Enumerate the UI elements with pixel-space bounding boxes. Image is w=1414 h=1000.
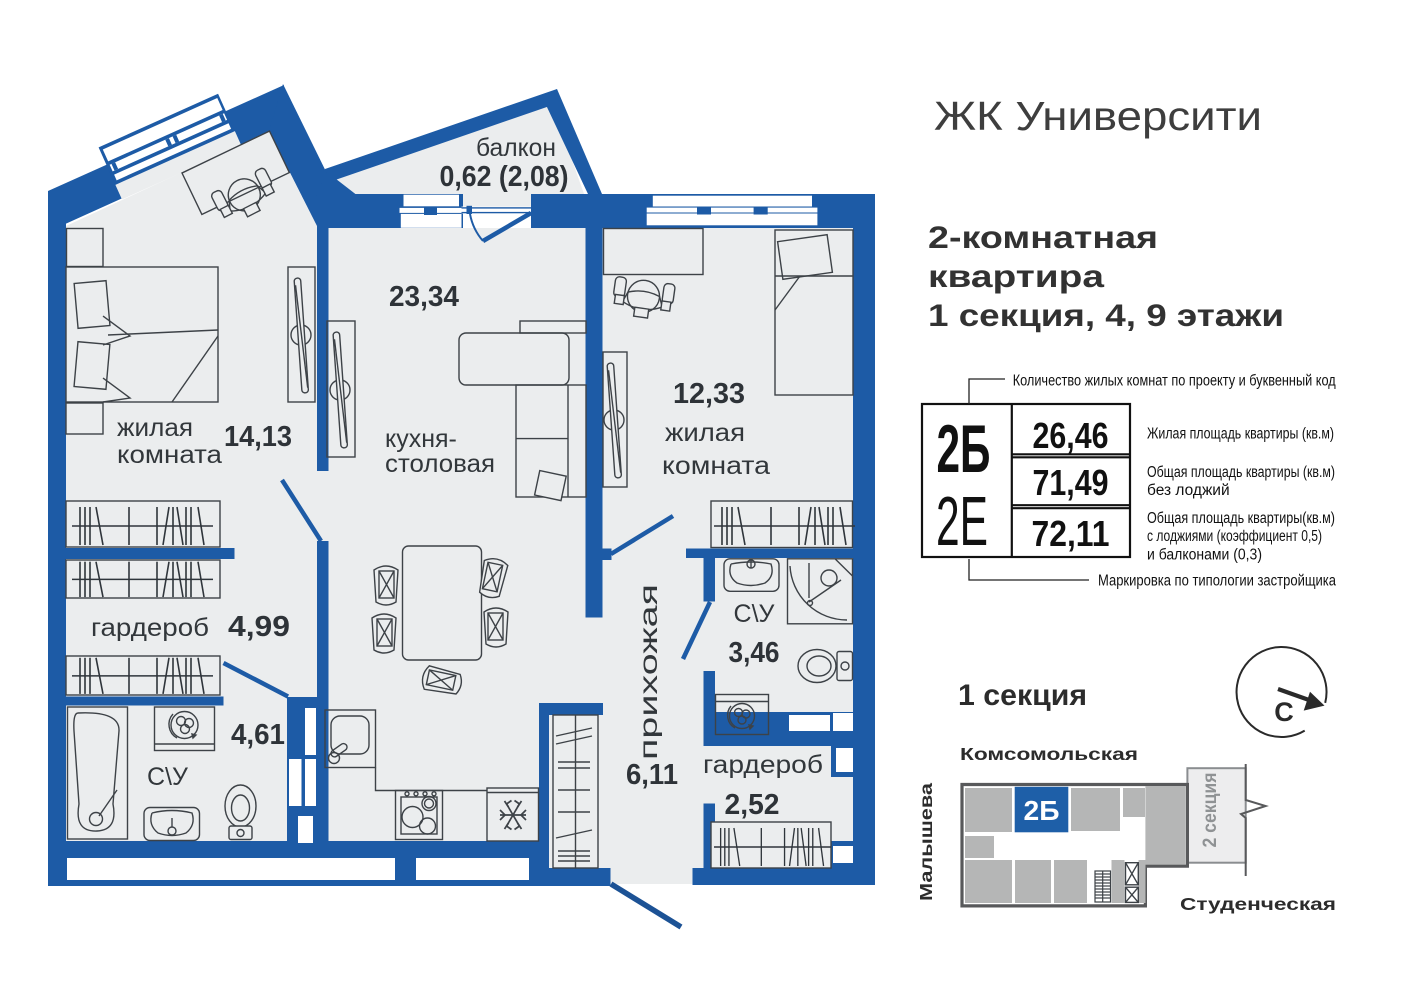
svg-text:С\У: С\У xyxy=(147,763,188,791)
svg-text:4,61: 4,61 xyxy=(231,719,285,751)
svg-text:2Е: 2Е xyxy=(936,482,988,560)
svg-text:2Б: 2Б xyxy=(1024,795,1060,826)
svg-text:гардероб: гардероб xyxy=(91,614,209,642)
svg-text:балкон: балкон xyxy=(476,134,556,162)
svg-text:без лоджий: без лоджий xyxy=(1147,482,1230,499)
svg-text:С\У: С\У xyxy=(734,600,775,628)
svg-text:26,46: 26,46 xyxy=(1033,415,1109,456)
svg-text:12,33: 12,33 xyxy=(673,378,745,410)
svg-text:жилая: жилая xyxy=(117,414,193,442)
svg-text:Маркировка по типологии застро: Маркировка по типологии застройщика xyxy=(1098,573,1336,590)
svg-text:прихожая: прихожая xyxy=(635,584,663,760)
svg-text:72,11: 72,11 xyxy=(1032,513,1110,554)
svg-text:кухня-: кухня- xyxy=(385,425,457,453)
svg-text:23,34: 23,34 xyxy=(389,281,459,313)
svg-text:6,11: 6,11 xyxy=(626,759,678,791)
svg-text:1 секция, 4, 9 этажи: 1 секция, 4, 9 этажи xyxy=(928,297,1284,333)
svg-text:гардероб: гардероб xyxy=(703,751,823,779)
svg-text:2,52: 2,52 xyxy=(725,789,780,821)
svg-text:Общая площадь квартиры (кв.м): Общая площадь квартиры (кв.м) xyxy=(1147,464,1335,481)
svg-text:14,13: 14,13 xyxy=(224,421,292,453)
svg-text:и балконами (0,3): и балконами (0,3) xyxy=(1147,547,1262,564)
svg-text:С: С xyxy=(1274,697,1294,727)
svg-text:квартира: квартира xyxy=(928,258,1105,294)
svg-text:2-комнатная: 2-комнатная xyxy=(928,219,1158,255)
svg-text:ЖК Университи: ЖК Университи xyxy=(934,93,1262,139)
svg-text:2 секция: 2 секция xyxy=(1200,773,1221,848)
svg-text:столовая: столовая xyxy=(385,450,495,478)
svg-text:комната: комната xyxy=(117,441,222,469)
svg-text:Общая площадь квартиры(кв.м): Общая площадь квартиры(кв.м) xyxy=(1147,510,1335,527)
svg-text:Комсомольская: Комсомольская xyxy=(960,744,1138,764)
svg-text:жилая: жилая xyxy=(665,419,745,447)
svg-text:с лоджиями (коэффициент 0,5): с лоджиями (коэффициент 0,5) xyxy=(1147,528,1322,545)
svg-text:комната: комната xyxy=(662,452,770,480)
svg-text:Студенческая: Студенческая xyxy=(1180,894,1336,914)
svg-text:71,49: 71,49 xyxy=(1033,462,1109,503)
svg-text:Малышева: Малышева xyxy=(916,783,936,901)
svg-text:Жилая площадь квартиры (кв.м): Жилая площадь квартиры (кв.м) xyxy=(1147,426,1334,443)
svg-text:Количество жилых комнат по про: Количество жилых комнат по проекту и бук… xyxy=(1013,373,1336,390)
svg-text:2Б: 2Б xyxy=(937,411,991,487)
svg-text:3,46: 3,46 xyxy=(729,637,780,669)
svg-text:4,99: 4,99 xyxy=(228,611,290,643)
svg-text:1 секция: 1 секция xyxy=(958,679,1087,712)
svg-text:0,62 (2,08): 0,62 (2,08) xyxy=(440,161,569,193)
